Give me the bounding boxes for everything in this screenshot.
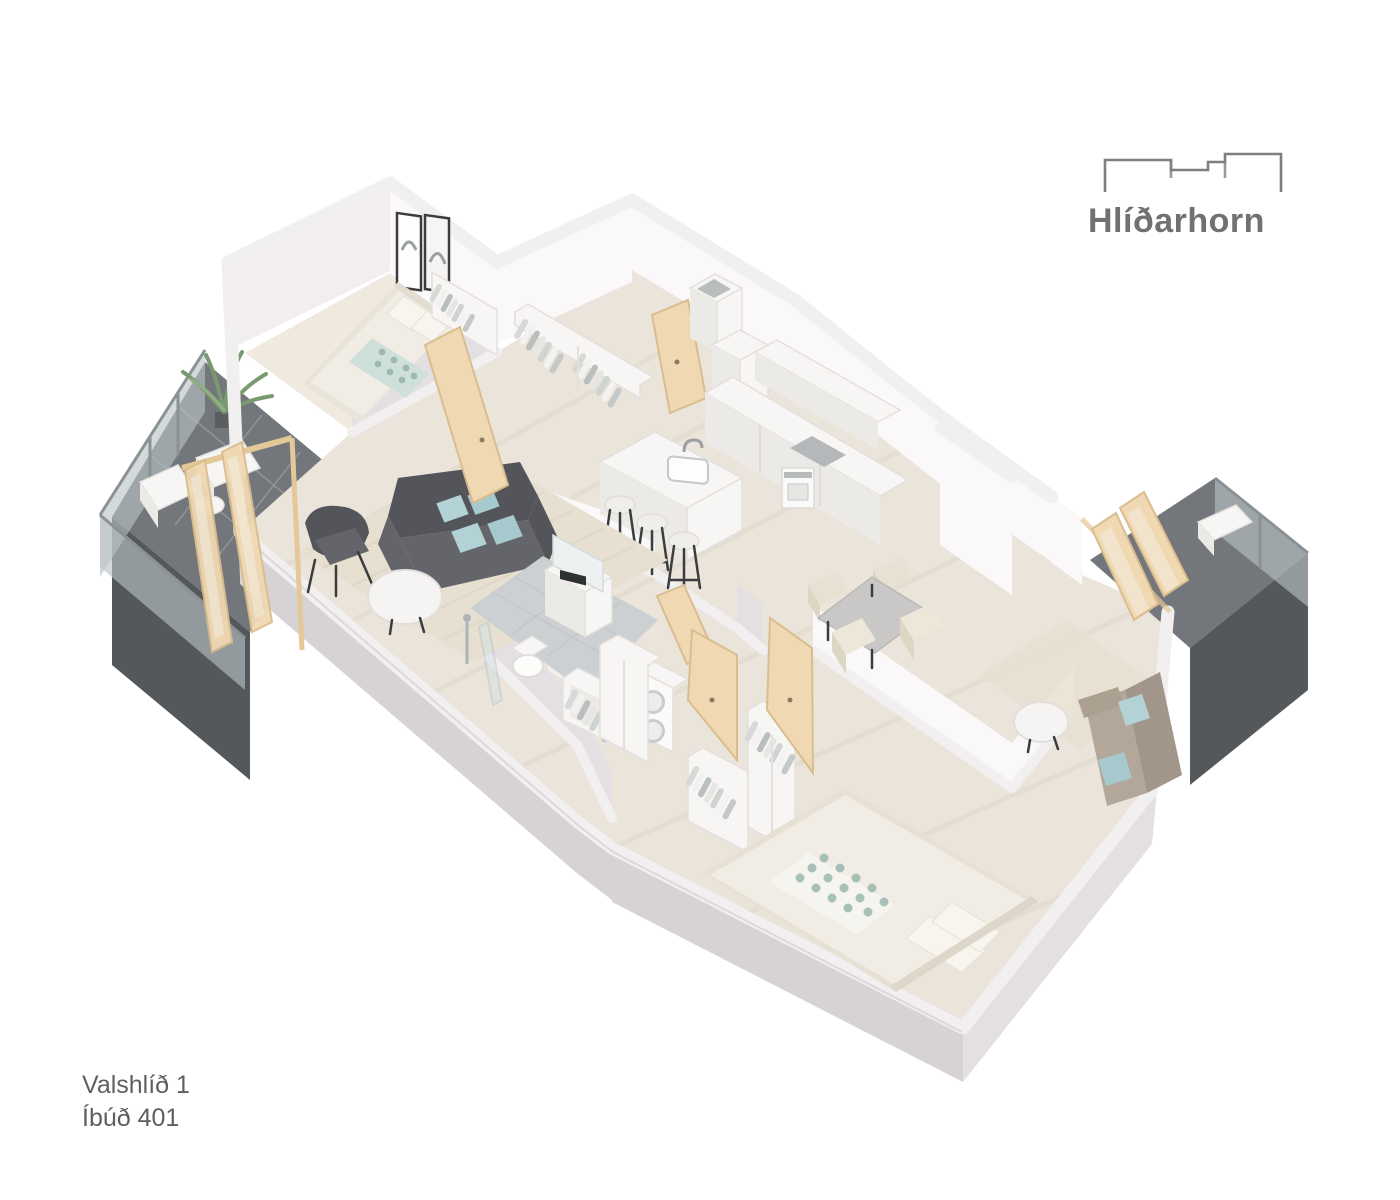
oven <box>782 468 814 508</box>
logo-building-icon <box>1105 154 1281 192</box>
unit-label: Íbúð 401 <box>82 1103 179 1132</box>
door-handle <box>710 698 715 703</box>
door-handle <box>788 698 793 703</box>
logo: Hlíðarhorn <box>1088 154 1281 240</box>
project-label: Valshlíð 1 <box>82 1071 190 1099</box>
door-handle <box>675 360 680 365</box>
plan-labels: Valshlíð 1 Íbúð 401 <box>82 1071 190 1132</box>
floor-plan-page: Hlíðarhorn Valshlíð 1 Íbúð 401 <box>0 0 1400 1200</box>
logo-brand-text: Hlíðarhorn <box>1088 202 1265 240</box>
floor-plan-3d-render: Hlíðarhorn Valshlíð 1 Íbúð 401 <box>0 0 1400 1200</box>
door-handle <box>480 438 485 443</box>
